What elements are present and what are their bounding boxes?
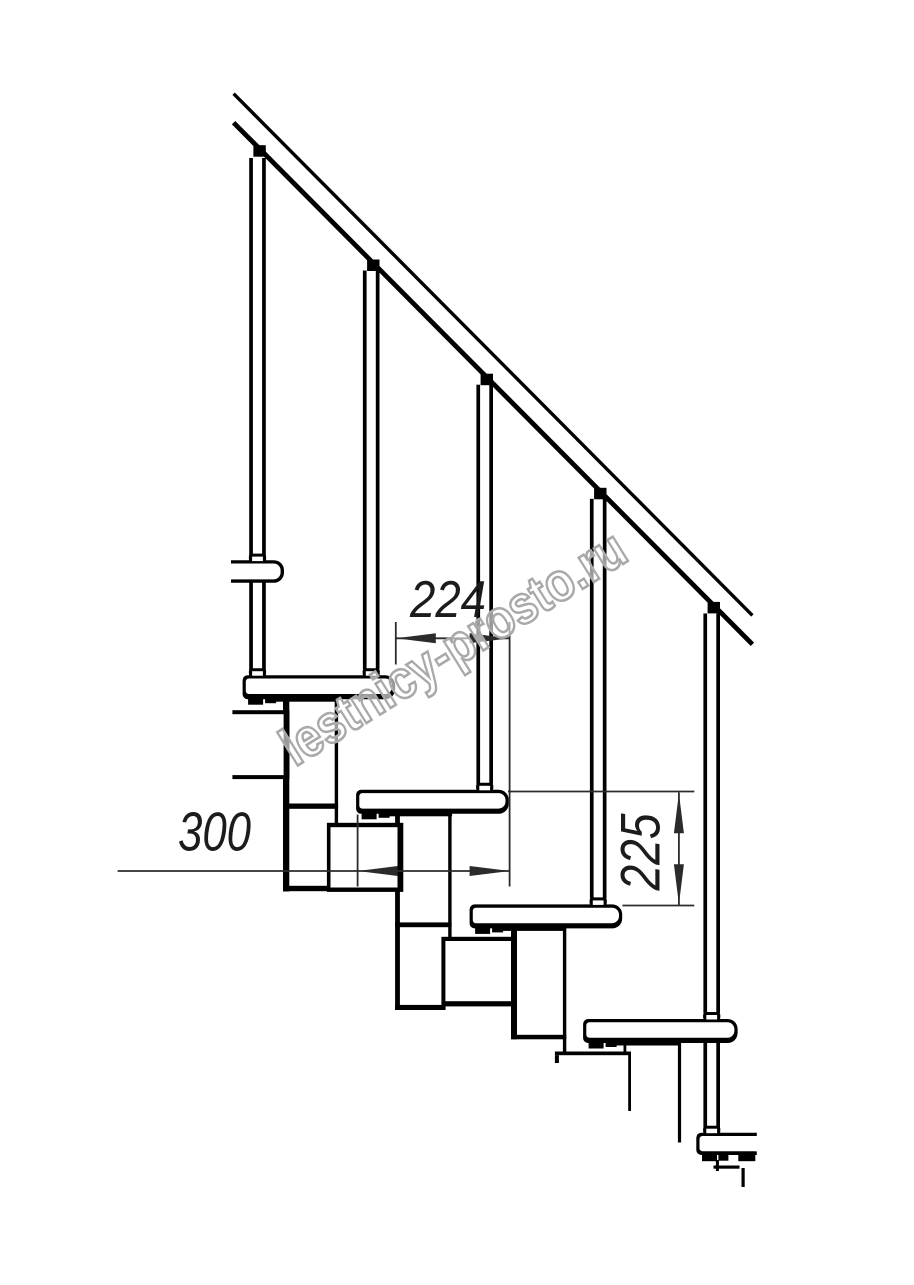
svg-text:300: 300 — [178, 801, 251, 863]
svg-text:225: 225 — [609, 813, 672, 892]
